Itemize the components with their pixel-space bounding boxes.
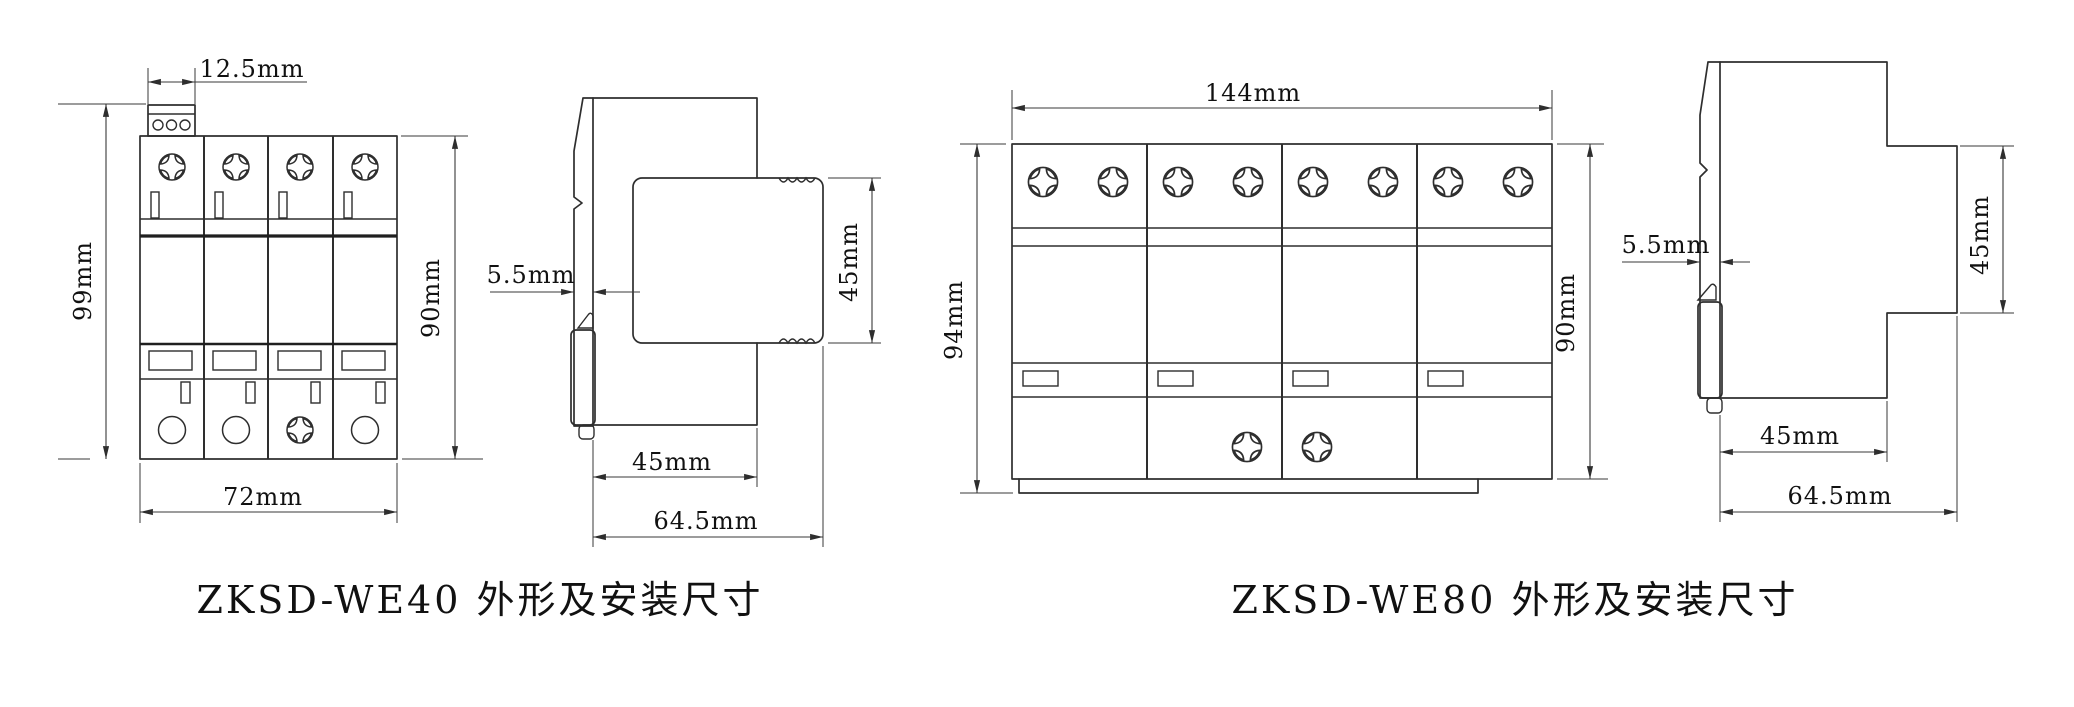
terminal-hole-icon xyxy=(153,120,163,130)
we40-lower-slots xyxy=(181,382,385,403)
phillips-screw-icon xyxy=(1298,167,1327,196)
indicator-window xyxy=(1158,371,1193,386)
vent-slot xyxy=(215,192,223,218)
we40-dim-overall-height: 99mm xyxy=(58,104,146,459)
indicator-window xyxy=(1293,371,1328,386)
indicator-window xyxy=(342,351,385,370)
we40-side-view xyxy=(571,98,823,439)
dim-label: 94mm xyxy=(940,280,968,360)
dim-label: 5.5mm xyxy=(1622,231,1711,259)
we40-upper-slots xyxy=(151,192,352,218)
plug-module-outline xyxy=(633,178,823,343)
we40-dim-terminal-width: 12.5mm xyxy=(148,55,307,104)
we80-top-screws xyxy=(1028,167,1532,196)
phillips-screw-icon xyxy=(1028,167,1057,196)
we80-dim-overall-width: 144mm xyxy=(1012,79,1552,140)
we40-dim-overall-width: 72mm xyxy=(140,463,397,523)
we80-base-strip xyxy=(1019,479,1478,493)
dim-label: 45mm xyxy=(1760,422,1840,450)
vent-slot xyxy=(246,382,255,403)
din-clip-latch xyxy=(1698,302,1722,398)
din-rail-plate-outline xyxy=(1700,62,1720,398)
dim-label: 99mm xyxy=(69,241,97,321)
vent-slot xyxy=(181,382,190,403)
dim-label: 72mm xyxy=(223,483,303,511)
indicator-window xyxy=(1428,371,1463,386)
we40-dim-plug-height: 45mm xyxy=(828,178,881,343)
we80-dim-overall-height: 94mm xyxy=(940,144,1013,493)
dim-label: 12.5mm xyxy=(200,55,305,83)
din-clip-foot xyxy=(1707,398,1722,413)
we40-side-body-top xyxy=(593,98,757,178)
phillips-screw-icon xyxy=(1098,167,1127,196)
dim-label: 64.5mm xyxy=(1788,482,1893,510)
din-rail-plate-outline xyxy=(574,98,593,426)
we40-side-body-bottom xyxy=(593,343,757,425)
terminal-hole-icon xyxy=(167,120,177,130)
phillips-screw-icon xyxy=(287,417,313,443)
we40-dim-body-height: 90mm xyxy=(401,136,483,459)
technical-drawing-page: 12.5mm 99mm 72mm 90mm 5.5mm xyxy=(0,0,2074,707)
indicator-window xyxy=(149,351,192,370)
drawing-canvas: 12.5mm 99mm 72mm 90mm 5.5mm xyxy=(0,0,2074,707)
we80-dim-body-height: 90mm xyxy=(1552,144,1608,479)
dim-label: 144mm xyxy=(1205,79,1301,107)
dim-label: 45mm xyxy=(632,448,712,476)
phillips-screw-icon xyxy=(1232,432,1261,461)
phillips-screw-icon xyxy=(1433,167,1462,196)
we80-dim-plug-height: 45mm xyxy=(1960,146,2014,313)
vent-slot xyxy=(311,382,320,403)
vent-slot xyxy=(376,382,385,403)
dim-label: 5.5mm xyxy=(487,261,576,289)
vent-slot xyxy=(344,192,352,218)
phillips-screw-icon xyxy=(159,154,185,180)
dim-label: 45mm xyxy=(835,222,863,302)
we80-side-view xyxy=(1698,62,1957,413)
indicator-window xyxy=(278,351,321,370)
phillips-screw-icon xyxy=(223,154,249,180)
we80-dim-rail-depth: 5.5mm xyxy=(1622,231,1750,262)
phillips-screw-icon xyxy=(1302,432,1331,461)
we40-front-view xyxy=(140,105,397,459)
phillips-screw-icon xyxy=(1233,167,1262,196)
dim-label: 45mm xyxy=(1966,195,1994,275)
round-hole-icon xyxy=(352,417,379,444)
dim-label: 64.5mm xyxy=(654,507,759,535)
round-hole-icon xyxy=(223,417,250,444)
we80-dim-overall-depth: 64.5mm xyxy=(1720,316,1957,522)
we40-caption: ZKSD-WE40 外形及安装尺寸 xyxy=(197,578,764,622)
we80-side-body-outline xyxy=(1720,62,1957,398)
phillips-screw-icon xyxy=(1503,167,1532,196)
terminal-hole-icon xyxy=(180,120,190,130)
we80-caption: ZKSD-WE80 外形及安装尺寸 xyxy=(1232,578,1799,622)
indicator-window xyxy=(1023,371,1058,386)
phillips-screw-icon xyxy=(352,154,378,180)
vent-slot xyxy=(279,192,287,218)
dim-label: 90mm xyxy=(417,258,445,338)
we80-front-view xyxy=(1012,144,1552,493)
we40-dim-overall-depth: 64.5mm xyxy=(593,346,823,547)
phillips-screw-icon xyxy=(287,154,313,180)
dim-label: 90mm xyxy=(1552,273,1580,353)
we40-dim-rail-depth: 5.5mm xyxy=(487,261,640,292)
we40-terminal-block xyxy=(148,105,195,136)
din-clip-foot xyxy=(579,425,594,439)
vent-slot xyxy=(151,192,159,218)
round-hole-icon xyxy=(159,417,186,444)
indicator-window xyxy=(213,351,256,370)
phillips-screw-icon xyxy=(1368,167,1397,196)
we80-indicator-windows xyxy=(1023,371,1463,386)
din-clip-pawl xyxy=(578,313,593,328)
phillips-screw-icon xyxy=(1163,167,1192,196)
